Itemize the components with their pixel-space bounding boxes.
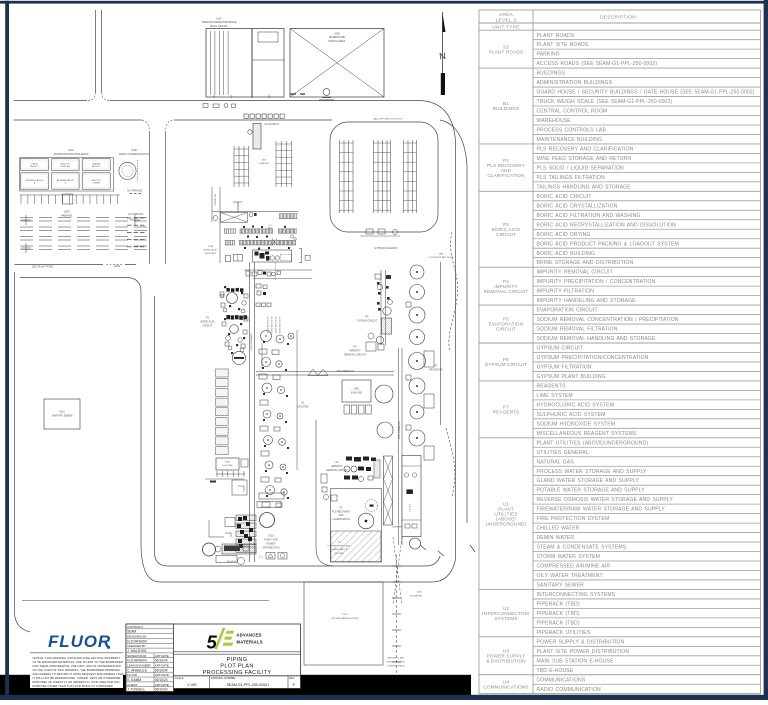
svg-text:UTILITIES: UTILITIES [297,407,309,409]
svg-text:BORIC ACID STOR: BORIC ACID STOR [275,316,278,333]
svg-text:ADMINISTRATION BUILDINGS: ADMINISTRATION BUILDINGS [53,153,88,156]
svg-text:AREA: AREA [499,12,514,18]
svg-text:RADIO COMMUNICATION: RADIO COMMUNICATION [537,687,601,693]
svg-text:WAREHOUSE/MAINTENANCE: WAREHOUSE/MAINTENANCE [202,21,237,24]
svg-text:IMPURITY HANDELING AND STORAGE: IMPURITY HANDELING AND STORAGE [537,298,637,304]
svg-text:CONVEYOR: CONVEYOR [215,193,217,206]
svg-text:FIRE PROTECTION SYSTEM: FIRE PROTECTION SYSTEM [537,516,610,522]
svg-text:E-HOUSE: E-HOUSE [222,465,233,467]
svg-text:EV PARKING: EV PARKING [128,190,143,193]
svg-text:CLARIFICATION: CLARIFICATION [330,548,348,551]
svg-text:PIPING: PIPING [227,657,248,663]
svg-text:TRUCK WEIGH SCALE (SEE 5EAM-G1: TRUCK WEIGH SCALE (SEE 5EAM-G1-PPL-250-0… [537,99,673,105]
svg-text:U201 PIPERACK: U201 PIPERACK [250,333,253,351]
svg-text:PARCEL AREA: PARCEL AREA [329,40,346,43]
svg-text:FLUOR: FLUOR [127,673,137,677]
svg-text:INTERCONNECTING SYSTEMS: INTERCONNECTING SYSTEMS [537,592,616,598]
svg-text:APP DATE: APP DATE [155,654,169,658]
svg-text:CIRCUIT: CIRCUIT [496,232,516,237]
svg-text:PLANT SITE ROADS: PLANT SITE ROADS [537,42,589,48]
svg-text:BORIC ACID CIRCUIT: BORIC ACID CIRCUIT [537,194,592,200]
svg-text:MINE FEED STORAGE AND RETURN: MINE FEED STORAGE AND RETURN [537,156,632,162]
svg-text:LR01: LR01 [354,389,360,391]
svg-text:PLS RECOVERY: PLS RECOVERY [332,511,351,513]
svg-text:ACCESS ROADS (SEE 5EAM-G1-PPL-: ACCESS ROADS (SEE 5EAM-G1-PPL-250-0002) [537,61,658,67]
svg-text:SODIUM REMOVAL CONCENTRATION /: SODIUM REMOVAL CONCENTRATION / PRECIPITA… [537,317,679,323]
svg-text:BUILDINGS: BUILDINGS [493,106,520,111]
svg-text:GUARD HOUSE / SECURITY BUILDIN: GUARD HOUSE / SECURITY BUILDINGS / GATE … [537,90,755,96]
svg-text:REV: REV [289,676,295,680]
svg-text:U110: U110 [59,412,65,414]
svg-text:FUTURE: FUTURE [334,553,344,555]
svg-text:FOR THEIR CONFIDENTIAL USE ONL: FOR THEIR CONFIDENTIAL USE ONLY, AND IN … [33,664,121,668]
svg-text:BLDG 100X110: BLDG 100X110 [210,25,228,28]
svg-text:DEMIN WATER: DEMIN WATER [537,535,575,541]
svg-text:0109: 0109 [64,211,70,214]
svg-text:PIPERACK UTILITIES: PIPERACK UTILITIES [537,630,591,636]
svg-text:06/10/24: 06/10/24 [155,688,168,692]
svg-text:0A10 GYPSUM STOCKPILE: 0A10 GYPSUM STOCKPILE [373,118,403,121]
svg-text:BATTERY LIMIT: BATTERY LIMIT [388,657,405,660]
svg-text:BORIC ACID RECRYSTALLIZATION A: BORIC ACID RECRYSTALLIZATION AND DISSOLU… [537,222,677,228]
svg-text:DISTRIBUTION: DISTRIBUTION [263,548,280,550]
svg-text:P3M: P3M [208,246,213,248]
svg-text:FACILITY: FACILITY [30,165,39,168]
svg-text:UTILITIES GENERAL: UTILITIES GENERAL [537,450,589,456]
svg-text:PARKING: PARKING [61,214,72,217]
svg-text:GE-6004: GE-6004 [226,561,236,563]
svg-text:APP DATE: APP DATE [155,683,169,687]
svg-text:CHECKED BY: CHECKED BY [127,644,146,648]
svg-text:J. WALDYKE: J. WALDYKE [127,649,147,653]
svg-text:PLANT SITE POWER DISTRIBUTION: PLANT SITE POWER DISTRIBUTION [537,649,630,655]
svg-text:BUILDING: BUILDING [205,253,216,255]
svg-text:0106: 0106 [334,33,340,36]
svg-text:MATERIALS: MATERIALS [237,639,263,644]
svg-text:OILY WATER TREATMENT: OILY WATER TREATMENT [537,573,603,579]
svg-text:PIPERACK (TBD): PIPERACK (TBD) [537,620,580,626]
svg-text:APP DATE: APP DATE [155,673,169,677]
svg-text:BRINE STORAGE AND DISTRIBUTION: BRINE STORAGE AND DISTRIBUTION [537,260,634,266]
svg-text:SYSTEMS: SYSTEMS [494,616,517,621]
svg-text:COMMS: COMMS [92,183,100,185]
svg-text:0-0: 0-0 [269,225,272,227]
svg-text:HO METER: HO METER [410,596,422,598]
svg-text:ADMINISTRATION BUILDINGS: ADMINISTRATION BUILDINGS [537,80,613,86]
svg-text:INJECTION WELL: INJECTION WELL [387,662,407,664]
svg-text:FACILITY: FACILITY [92,165,101,168]
svg-text:MAINTENANCE BUILDING: MAINTENANCE BUILDING [537,137,603,143]
svg-text:MISCELLANEOUS REAGENT SYSTEMS: MISCELLANEOUS REAGENT SYSTEMS [537,431,637,437]
svg-text:BORIC ACID: BORIC ACID [201,321,215,324]
svg-text:BORIC ACID BUILDING: BORIC ACID BUILDING [537,251,596,257]
svg-text:BORIC ACID FILTRATION AND WASH: BORIC ACID FILTRATION AND WASHING [537,213,641,219]
svg-text:SCALE: SCALE [175,676,184,680]
svg-text:UNDERGROUND): UNDERGROUND) [486,521,527,526]
svg-text:BORIC ACID STOR: BORIC ACID STOR [279,316,282,333]
svg-text:COMPRESSED AIR/MINE AIR: COMPRESSED AIR/MINE AIR [537,564,611,570]
svg-text:LEAD ENGINEER: LEAD ENGINEER [127,663,150,667]
svg-text:REMOVAL CIRCUIT: REMOVAL CIRCUIT [484,289,529,294]
svg-text:NATURAL GAS: NATURAL GAS [537,459,575,465]
svg-text:PLS RECOVERY AND CLARIFICATION: PLS RECOVERY AND CLARIFICATION [537,146,634,152]
svg-text:OF 5E ADVANCED MATERIALS, AND: OF 5E ADVANCED MATERIALS, AND IS LENT TO… [33,660,123,664]
svg-text:PARKING: PARKING [537,52,560,58]
svg-text:FIRST AID: FIRST AID [61,165,71,168]
svg-text:LOADOUT: LOADOUT [259,162,271,165]
svg-text:GYPSUM PLANT BLDG: GYPSUM PLANT BLDG [429,256,454,259]
svg-text:BORIC ACID: BORIC ACID [204,249,218,252]
svg-text:BORIC ACID STOR: BORIC ACID STOR [271,316,274,333]
svg-text:U110: U110 [342,614,348,616]
svg-text:GYPSUM LOADOUT: GYPSUM LOADOUT [374,247,398,250]
svg-text:06/10/24: 06/10/24 [155,678,168,682]
svg-text:CLIENT: CLIENT [127,683,138,687]
svg-text:SULPHURIC ACID SYSTEM: SULPHURIC ACID SYSTEM [537,412,606,418]
svg-text:REAGENTS: REAGENTS [429,369,442,372]
svg-text:PLANT SITE: PLANT SITE [264,539,278,542]
svg-text:COMMUNICATIONS: COMMUNICATIONS [537,677,586,683]
svg-text:DISPOSED OF DIRECTLY OR INDIRE: DISPOSED OF DIRECTLY OR INDIRECTLY, NOR … [33,680,121,684]
svg-text:MAIN SUB STATION E-HOUSE: MAIN SUB STATION E-HOUSE [537,658,614,664]
svg-text:PURPOSE OTHER THAN THAT FOR WH: PURPOSE OTHER THAN THAT FOR WHICH IS FUR… [33,684,114,688]
svg-text:PROCESSING FACILITY: PROCESSING FACILITY [203,670,272,676]
svg-text:BORIC ACID CRYSTALLIZATION: BORIC ACID CRYSTALLIZATION [537,203,618,209]
svg-text:CLARIFICATION: CLARIFICATION [332,518,350,521]
svg-text:N.JOHNSON: N.JOHNSON [127,659,147,663]
svg-text:C 0 1/6-0: C 0 1/6-0 [410,504,412,512]
svg-text:SODIUM REMOVAL FILTRATION: SODIUM REMOVAL FILTRATION [537,327,618,333]
svg-text:STORM WATER SYSTEM: STORM WATER SYSTEM [537,554,600,560]
svg-text:0A LOADOUT: 0A LOADOUT [265,123,280,126]
svg-text:WAREHOUSE: WAREHOUSE [537,118,572,124]
svg-text:SLEEPER RACK: SLEEPER RACK [387,665,405,668]
svg-text:U201 PIPERACK: U201 PIPERACK [398,420,401,439]
svg-text:GLAND WATER STORAGE AND SUPPLY: GLAND WATER STORAGE AND SUPPLY [537,478,640,484]
svg-text:1"=60': 1"=60' [187,683,197,687]
svg-text:BORIC ACID PRODUCT PACKING & L: BORIC ACID PRODUCT PACKING & LOADOUT SYS… [537,241,679,247]
svg-text:PLOT PLAN: PLOT PLAN [220,663,253,669]
svg-text:POWER SUPPLY & DISTRIBUTION: POWER SUPPLY & DISTRIBUTION [537,639,625,645]
svg-text:UNIT TYPE: UNIT TYPE [492,25,520,31]
svg-text:DESIGNED BY: DESIGNED BY [127,635,147,639]
svg-text:GYPSUM PRECIPITATION/CONCENTRA: GYPSUM PRECIPITATION/CONCENTRATION [537,355,649,361]
svg-text:AND: AND [339,514,344,517]
svg-text:CONTRACT: CONTRACT [127,625,143,629]
svg-text:COMMUNICATIONS: COMMUNICATIONS [483,684,528,689]
svg-text:FIREWATER/RAW WATER STORAGE AN: FIREWATER/RAW WATER STORAGE AND SUPPLY [537,507,666,513]
svg-text:06/10/24: 06/10/24 [155,668,168,672]
svg-text:OF THE LOAN OF THIS DRAWING, T: OF THE LOAN OF THIS DRAWING, THE BORROWE… [33,668,121,672]
svg-text:STEAM & CONDENSATE SYSTEMS: STEAM & CONDENSATE SYSTEMS [537,545,627,551]
svg-text:IMPURITY FILTRATION: IMPURITY FILTRATION [537,289,595,295]
svg-text:IMPURITY REMOVAL CIRCUIT: IMPURITY REMOVAL CIRCUIT [537,270,613,276]
svg-text:TBD E-HOUSE: TBD E-HOUSE [537,668,574,674]
svg-text:06/10/24: 06/10/24 [155,659,168,663]
svg-text:IMPURITY: IMPURITY [349,351,361,353]
svg-text:& DISTRIBUTION: & DISTRIBUTION [486,658,526,663]
svg-text:PROCESS WATER STORAGE AND SUPP: PROCESS WATER STORAGE AND SUPPLY [537,469,648,475]
svg-text:DESCRIPTION: DESCRIPTION [600,15,636,21]
svg-text:SODIUM REMOVAL HANDLING AND ST: SODIUM REMOVAL HANDLING AND STORAGE [537,336,656,342]
svg-text:C. ANGELES: C. ANGELES [127,668,147,672]
svg-text:RADIO COMMUNICATION: RADIO COMMUNICATION [119,153,149,156]
svg-text:WAREHOUSE: WAREHOUSE [329,36,345,39]
svg-text:LEVEL 2: LEVEL 2 [496,17,517,23]
svg-text:PIPERACK (TBD): PIPERACK (TBD) [537,611,580,617]
svg-text:K. KAMM: K. KAMM [127,678,141,682]
svg-text:REMOVAL CIRCUIT: REMOVAL CIRCUIT [326,469,348,472]
svg-text:APP DATE: APP DATE [155,663,169,667]
svg-text:0101: 0101 [68,149,74,152]
svg-text:PLANT UTILITIES (ABOVE/UNDERGR: PLANT UTILITIES (ABOVE/UNDERGROUND) [537,440,649,446]
svg-text:5EAM: 5EAM [127,630,136,634]
svg-text:STORM WATER SYSTEM: STORM WATER SYSTEM [332,617,359,620]
svg-text:1 1: 1 1 [259,556,263,559]
svg-text:REVERSE OSMOSIS WATER STORAGE: REVERSE OSMOSIS WATER STORAGE AND SUPPLY [537,497,674,503]
svg-text:PLANT ROADS: PLANT ROADS [537,33,575,39]
svg-text:SODIUM HYDROXIDE SYSTEM: SODIUM HYDROXIDE SYSTEM [537,421,616,427]
svg-text:SUPERVISOR: SUPERVISOR [127,654,146,658]
svg-text:EVAPORATION CIRCUIT: EVAPORATION CIRCUIT [537,308,598,314]
svg-text:HYDROCLORIC ACID SYSTEM: HYDROCLORIC ACID SYSTEM [537,402,614,408]
svg-text:N: N [439,51,447,62]
svg-text:PROCESS CONTROLS LAB: PROCESS CONTROLS LAB [537,128,607,134]
svg-text:PLS TAILINGS FILTRATION: PLS TAILINGS FILTRATION [537,175,606,181]
svg-text:E-HOUSE: E-HOUSE [351,393,362,395]
svg-text:U302: U302 [225,462,231,464]
svg-text:GYPSUM CIRCUIT: GYPSUM CIRCUIT [537,346,584,352]
svg-text:GYPSUM CIRCUIT: GYPSUM CIRCUIT [485,362,528,367]
svg-text:PLS SOLID / LIQUID SEPARATION: PLS SOLID / LIQUID SEPARATION [537,165,625,171]
svg-text:0107: 0107 [216,18,222,21]
svg-text:CIRCUIT: CIRCUIT [203,326,213,328]
svg-text:IT WILL NOT BE REPRODUCED, COP: IT WILL NOT BE REPRODUCED, COPIED, LENT … [33,676,121,680]
svg-text:IMPURITY: IMPURITY [331,466,343,468]
svg-text:FLUOR: FLUOR [48,632,111,651]
svg-text:NOTICE: THIS DRAWING CONTAINS: NOTICE: THIS DRAWING CONTAINS INTELLECTU… [33,656,121,660]
svg-text:CENTRAL CONTROL ROOM: CENTRAL CONTROL ROOM [537,109,608,115]
svg-text:POWER: POWER [267,544,276,546]
svg-text:CHILLED WATER: CHILLED WATER [537,526,580,532]
svg-text:POTABLE WATER STORAGE AND SUPP: POTABLE WATER STORAGE AND SUPPLY [537,488,646,494]
svg-text:2001: 2001 [417,592,423,594]
svg-text:BUILDINGS: BUILDINGS [537,71,566,77]
svg-text:GYPSUM FILTRATION: GYPSUM FILTRATION [537,365,592,371]
svg-text:REAGENTS: REAGENTS [493,410,520,415]
svg-text:CIRCUIT: CIRCUIT [496,327,516,332]
svg-text:DRAWING NUMBER: DRAWING NUMBER [211,676,236,680]
svg-text:J. FUSSELL: J. FUSSELL [127,688,145,692]
svg-text:SANITARY SEWER: SANITARY SEWER [52,415,73,418]
svg-text:CLARIFIER: CLARIFIER [392,526,402,529]
svg-text:PIPERACK (TBD): PIPERACK (TBD) [537,601,580,607]
svg-text:AND AGREES TO RETURN IT UPON R: AND AGREES TO RETURN IT UPON REQUEST AND… [33,672,124,676]
svg-text:0108: 0108 [131,149,137,152]
svg-text:GYPSUM PLANT BUILDING: GYPSUM PLANT BUILDING [537,374,606,380]
svg-text:U201 PIPERACK: U201 PIPERACK [336,370,355,373]
svg-text:LIME SYSTEM: LIME SYSTEM [537,393,573,399]
svg-text:ADVANCED: ADVANCED [237,633,262,638]
svg-text:0201 PLANT ROAD: 0201 PLANT ROAD [32,265,53,268]
svg-text:EV PARKING: EV PARKING [129,213,144,216]
svg-text:PLS RECOVERY AND: PLS RECOVERY AND [328,544,351,547]
svg-text:IMPURITY PRECIPITATION / CONCE: IMPURITY PRECIPITATION / CONCENTRATION [537,279,656,285]
svg-text:5EAM-G1-PPL-250-00001: 5EAM-G1-PPL-250-00001 [227,683,269,687]
svg-text:GATE: GATE [114,265,121,268]
svg-text:TAILINGS HANDLING AND STORAGE: TAILINGS HANDLING AND STORAGE [537,184,632,190]
svg-text:BORIC ACID DRYING: BORIC ACID DRYING [537,232,591,238]
svg-text:GYPSUM CIRCUIT: GYPSUM CIRCUIT [357,321,378,323]
svg-text:REMOVAL CIRCUIT: REMOVAL CIRCUIT [344,354,366,357]
svg-text:REAGENTS: REAGENTS [537,383,566,389]
svg-text:PLANT ROADS: PLANT ROADS [489,49,524,54]
svg-text:N.JOHNSON: N.JOHNSON [127,639,147,643]
svg-text:CLARIFICATION: CLARIFICATION [487,173,524,178]
svg-text:SANITARY SEWER: SANITARY SEWER [537,583,585,589]
svg-text:U301: U301 [268,536,274,538]
